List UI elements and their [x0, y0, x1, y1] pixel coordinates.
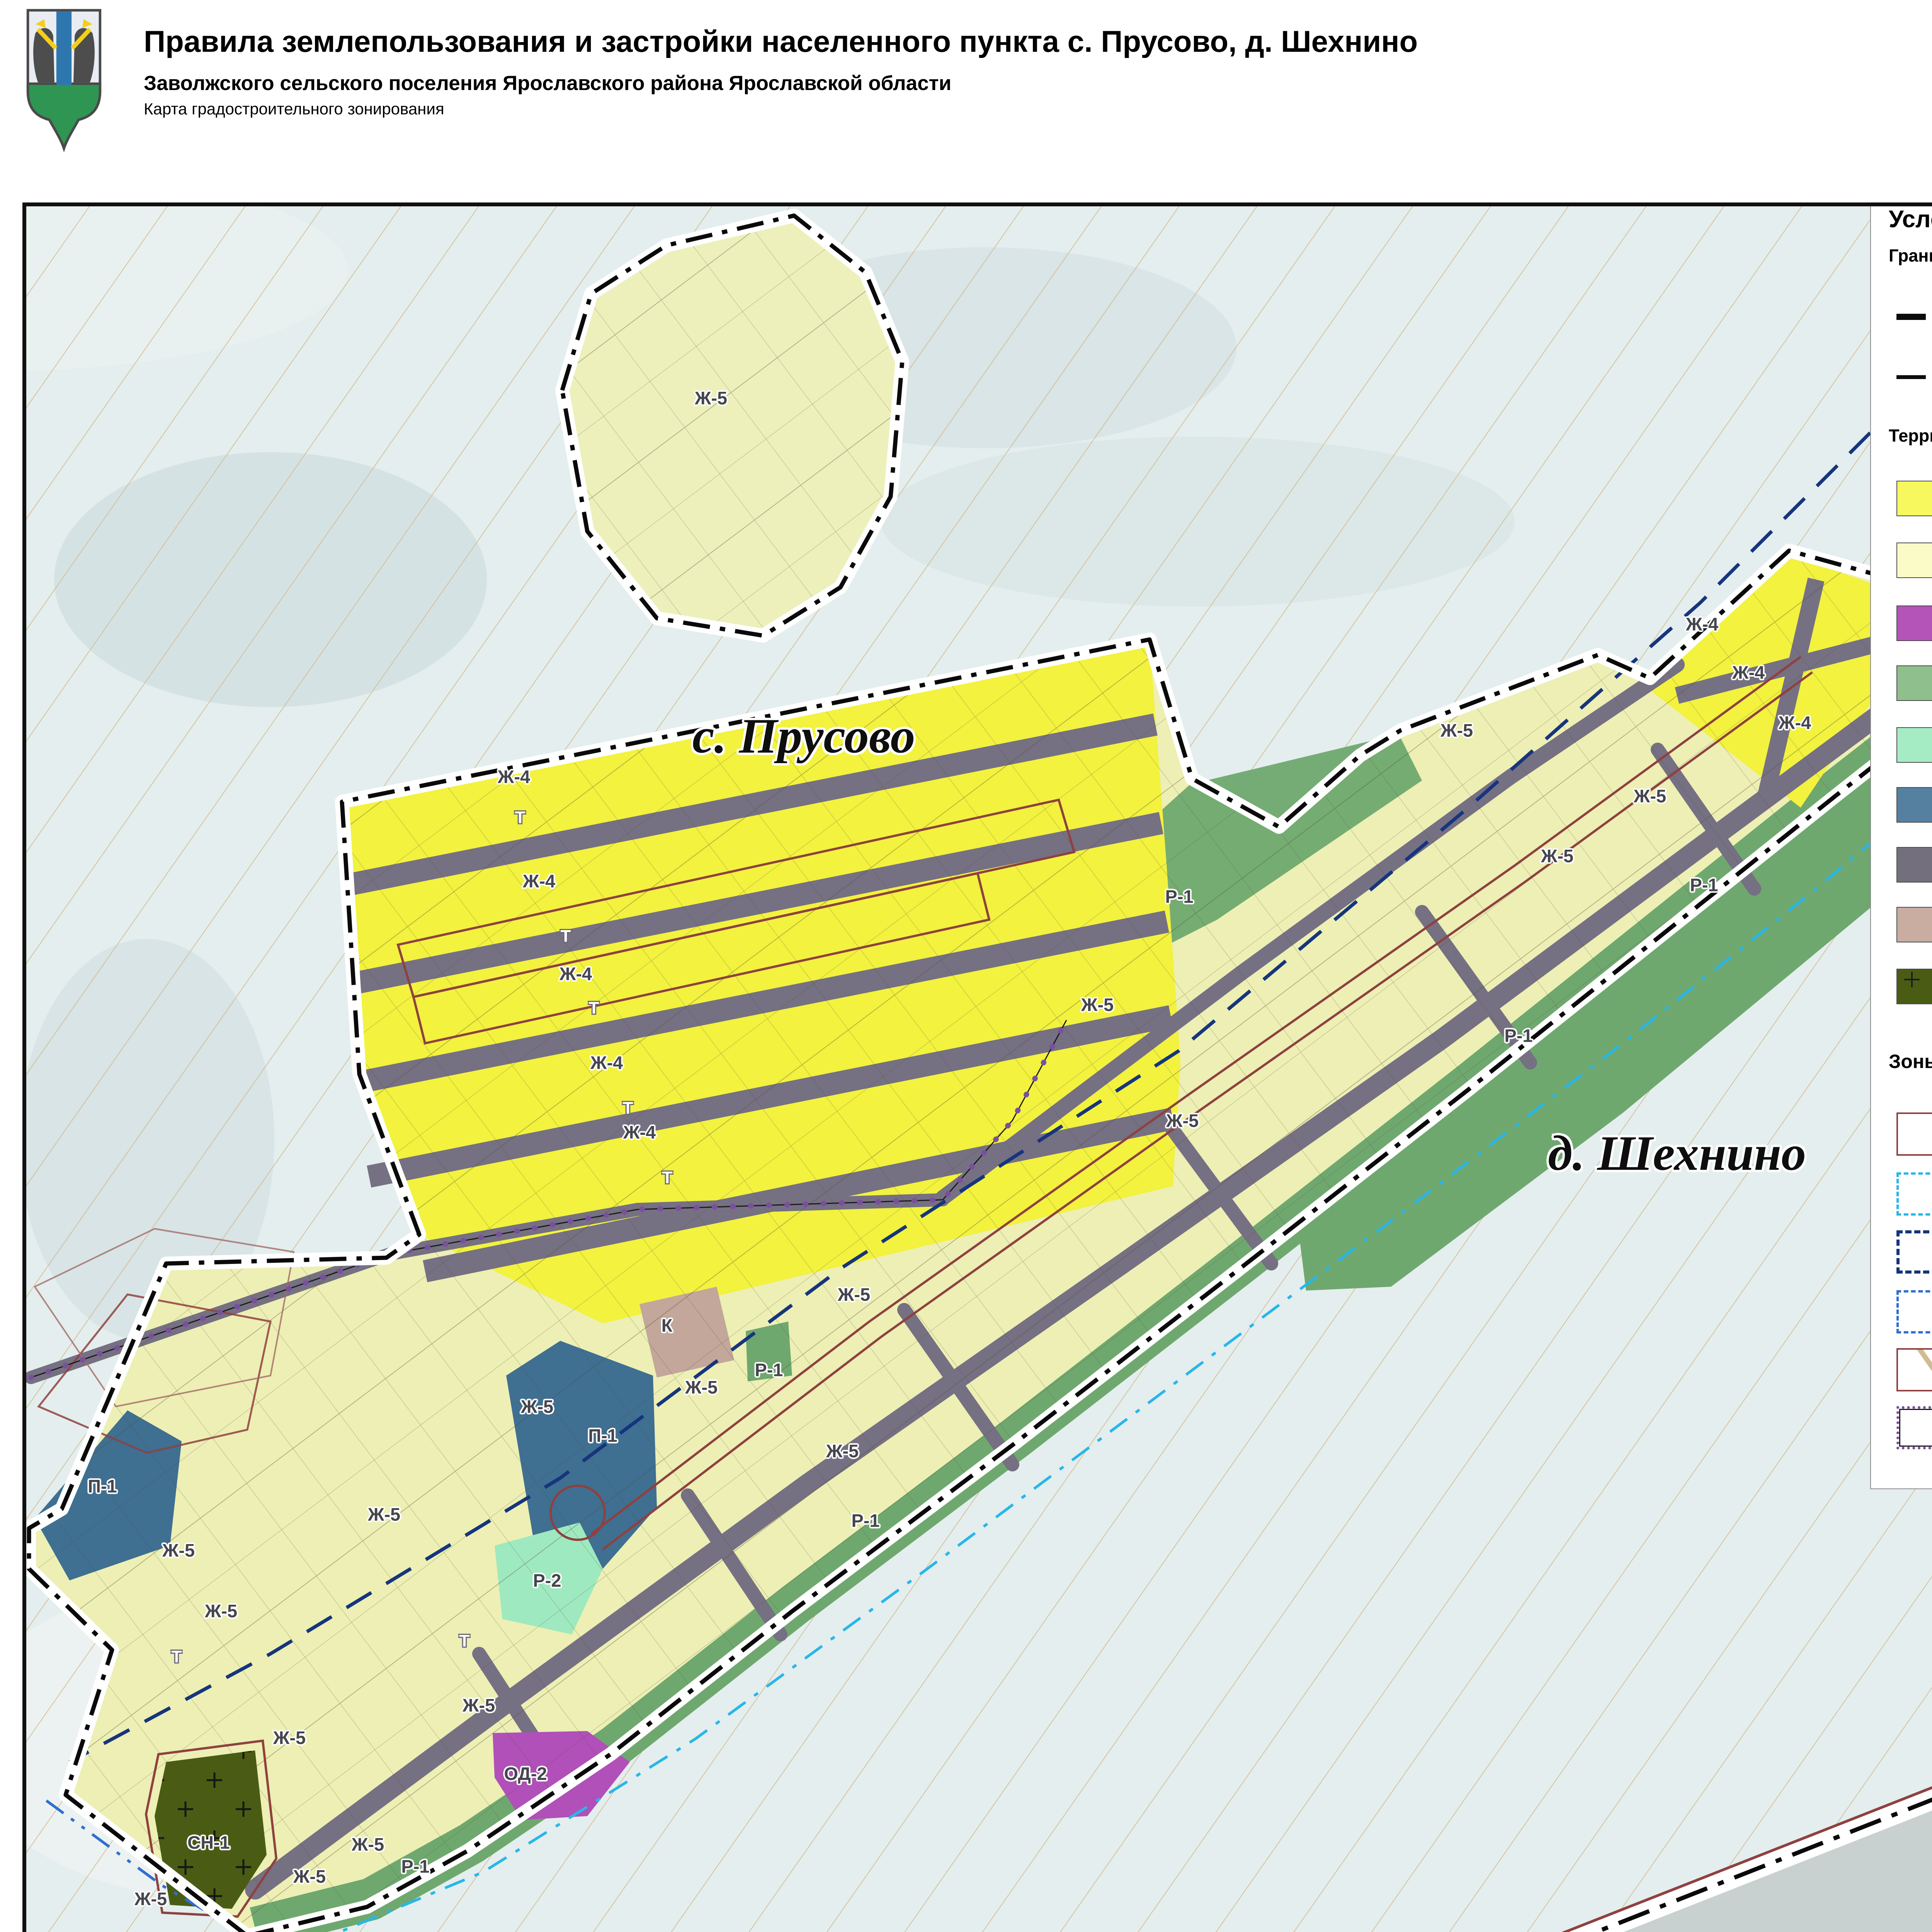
zone-label: Т [561, 927, 571, 946]
page: Правила землепользования и застройки нас… [0, 0, 1932, 1932]
zone-label: Ж-4 [498, 766, 530, 787]
legend-item: Береговая полоса [1896, 1290, 1932, 1333]
zone-label: Т [515, 808, 526, 827]
zone-label: Ж-5 [826, 1440, 859, 1462]
protected-zone-symbol-icon [1896, 1112, 1932, 1156]
locality-boundary-line-icon [1896, 375, 1932, 379]
zone-label: Ж-5 [293, 1866, 326, 1887]
legend-item: Придорожная полоса [1896, 1406, 1932, 1449]
zoning-map [22, 202, 1932, 1932]
legend-item: Граница населенного пункта [1896, 368, 1932, 386]
settlement-boundary-line-icon [1896, 314, 1932, 320]
zone-label: П-1 [588, 1425, 617, 1446]
zone-swatch [1896, 481, 1932, 516]
legend-item: СН-1 Ритуальная деятельность [1896, 969, 1932, 1004]
zone-label: Ж-5 [1081, 994, 1114, 1015]
zone-label: Ж-5 [1541, 845, 1573, 867]
zone-label: Ж-5 [463, 1695, 495, 1716]
legend-item: Приаэродромная территория [1896, 1348, 1932, 1391]
zone-label: Р-1 [1165, 886, 1193, 907]
zone-swatch [1896, 787, 1932, 823]
zone-label: Ж-4 [1779, 712, 1811, 733]
page-subtitle: Заволжского сельского поселения Ярославс… [144, 71, 951, 95]
zone-swatch [1896, 969, 1932, 1004]
legend-item: Р-1 Зона рекреации [1896, 665, 1932, 701]
zone-label: Ж-4 [590, 1052, 623, 1073]
zone-label: Р-1 [851, 1510, 879, 1531]
airfield-vicinity-symbol-icon [1896, 1348, 1932, 1391]
legend-item: Прибрежная защитная полоса [1896, 1172, 1932, 1216]
zone-label: Р-1 [1690, 874, 1718, 896]
zone-swatch [1896, 727, 1932, 763]
zone-swatch [1896, 907, 1932, 942]
legend-zones-heading: Территориальные зоны: [1889, 426, 1932, 446]
zone-label: ОД-2 [504, 1763, 547, 1784]
zone-label: Т [459, 1631, 470, 1651]
legend-item: Т Зона транспортной инфраструктуры [1896, 847, 1932, 883]
map-kind-caption: Карта градостроительного зонирования [144, 100, 444, 118]
legend-item: ОД-2 Зона размещения объектов общественн… [1896, 605, 1932, 641]
coastal-protective-strip-symbol-icon [1896, 1172, 1932, 1216]
zone-label: Ж-5 [1440, 720, 1473, 741]
zone-label: Ж-4 [523, 871, 555, 892]
zone-label: Т [172, 1647, 182, 1667]
legend-special-heading: Зоны с особыми условиями использования т… [1889, 1051, 1932, 1073]
legend-title: Условное обозначение: [1889, 206, 1932, 233]
legend-item: П-1 Производственная деятельность [1896, 787, 1932, 823]
zone-swatch [1896, 665, 1932, 701]
legend-item: Охранная зона [1896, 1112, 1932, 1156]
zone-label: Ж-5 [685, 1377, 718, 1398]
zone-label: Т [662, 1168, 673, 1187]
settlement-label-prusovo: с. Прусово [692, 708, 915, 765]
legend-item: Ж-4 Индивидуальная жилая застройка [1896, 481, 1932, 516]
legend-item: Ж-5 Зона, предназначенная для ведения са… [1896, 542, 1932, 579]
zone-label: Р-2 [533, 1570, 561, 1591]
legend-item: К Зона коммунального обслуживания [1896, 907, 1932, 942]
zone-label: Ж-5 [695, 388, 727, 409]
zone-label: Р-1 [401, 1856, 429, 1877]
zone-label: Ж-5 [205, 1600, 237, 1622]
legend-item: Р-2 Зона спорта [1896, 727, 1932, 763]
zone-label: Ж-4 [560, 963, 592, 985]
zone-label: Ж-4 [623, 1122, 656, 1143]
zone-label: П-1 [88, 1476, 117, 1497]
coat-of-arms-icon [22, 8, 105, 156]
zone-label: Т [623, 1099, 633, 1118]
zone-label: Ж-5 [134, 1888, 167, 1910]
roadside-strip-symbol-icon [1896, 1406, 1932, 1449]
zone-label: Ж-5 [838, 1284, 870, 1305]
zone-label: Т [589, 998, 599, 1018]
shoreline-strip-symbol-icon [1896, 1290, 1932, 1333]
page-title: Правила землепользования и застройки нас… [144, 24, 1418, 59]
zone-label: Р-1 [1504, 1025, 1532, 1046]
zone-label: К [662, 1315, 673, 1336]
legend-panel: Условное обозначение: Границы единиц адм… [1870, 202, 1932, 1489]
zone-swatch [1896, 847, 1932, 883]
zone-label: Ж-4 [1686, 614, 1718, 635]
zone-label: Ж-5 [521, 1396, 553, 1417]
zone-label: Ж-5 [162, 1540, 195, 1561]
legend-item: Граница сельского поселения [1896, 308, 1932, 326]
water-protection-zone-symbol-icon [1896, 1230, 1932, 1274]
zone-label: Ж-5 [273, 1727, 306, 1748]
zone-label: Р-1 [755, 1359, 783, 1381]
zone-label: Ж-5 [1166, 1110, 1199, 1131]
zone-label: Ж-5 [1634, 786, 1666, 807]
zone-swatch [1896, 605, 1932, 641]
zone-label: Ж-5 [352, 1834, 384, 1855]
settlement-label-shekhnino: д. Шехнино [1548, 1125, 1806, 1182]
zone-label: Ж-5 [368, 1504, 400, 1525]
legend-item: Водоохранная (рыбоохранная) зона [1896, 1230, 1932, 1274]
zone-swatch [1896, 543, 1932, 578]
legend-admin-heading: Границы единиц административно-территори… [1889, 246, 1932, 266]
zone-label: СН-1 [187, 1832, 230, 1853]
zone-label: Ж-4 [1732, 662, 1765, 683]
